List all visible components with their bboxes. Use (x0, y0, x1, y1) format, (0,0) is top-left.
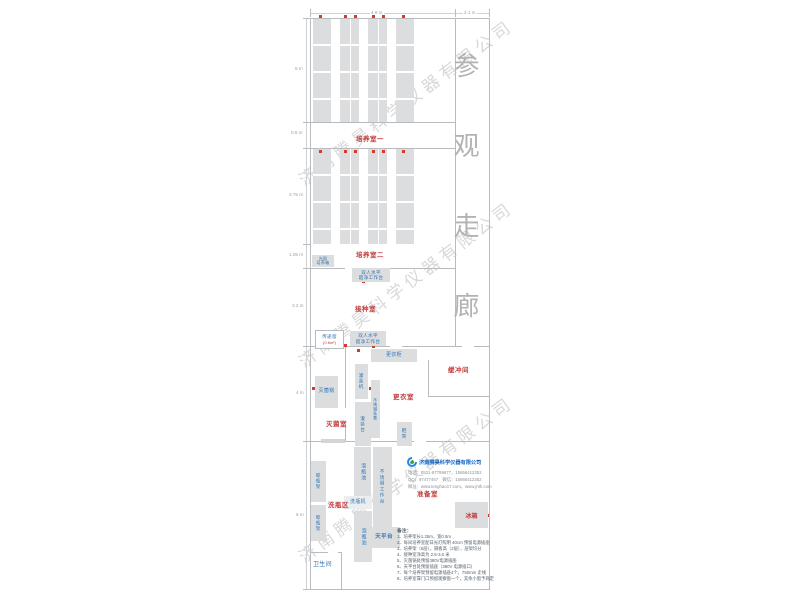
dimension-label-3-75m: 3.75 m (288, 192, 304, 197)
room-label-washing: 洗瓶区 (328, 499, 349, 509)
dimension-label-top-corridor: 2.1 m (463, 10, 477, 15)
room-label-inoculation: 接种室 (355, 303, 376, 313)
equipment-wardrobe: 更衣柜 (371, 349, 417, 362)
wall-inoculation-bottom (342, 346, 390, 347)
room-label-culture1: 培养室一 (356, 133, 384, 143)
equipment-drying-rack-1: 晾瓶架 (311, 461, 326, 502)
outlet-dot (382, 15, 385, 18)
outlet-dot (319, 15, 322, 18)
clean-bench-label: 双人水平 超净工作台 (359, 270, 383, 280)
outlet-dot (402, 15, 405, 18)
outlet-dot (372, 150, 375, 153)
wall-toilet-top (310, 552, 328, 553)
soak-pool-label: 泡瓶池 (360, 463, 365, 481)
notes-title: 备注： (397, 527, 411, 534)
equipment-clean-bench-1: 双人水平 超净工作台 (352, 268, 390, 282)
equipment-light-incubator: 光照 培养箱 (312, 255, 334, 267)
culture-shelf-strip (368, 149, 387, 244)
outlet-dot (382, 150, 385, 153)
light-incubator-label: 光照 培养箱 (317, 257, 330, 266)
steel-bench-label: 不锈钢条凳 (373, 398, 378, 421)
culture-shelf-strip (313, 149, 331, 244)
dimension-label-5m: 5 m (294, 66, 304, 71)
fridge-label: 冰箱 (465, 511, 477, 520)
wall-culture2-bottom (310, 268, 345, 269)
outlet-dot (354, 15, 357, 18)
wall-inoculation-bottom (402, 346, 428, 347)
drying-rack-label: 晾瓶架 (316, 515, 321, 532)
wall-buffer-bottom (428, 396, 490, 397)
pass-window-size: (0.6m²) (323, 340, 336, 345)
dimension-tick (303, 589, 310, 590)
company-qq: QQ：97477467 微信：15866412352 (408, 477, 482, 483)
bottle-washer-label: 洗瓶机 (350, 500, 366, 505)
dimension-label-6m: 6 m (295, 512, 305, 517)
dimension-label-1-05m: 1.05 m (288, 252, 304, 257)
outlet-dot (344, 344, 347, 347)
outlet-dot (344, 15, 347, 18)
culture-shelf-strip (313, 19, 331, 122)
equipment-fridge: 冰箱 (455, 502, 488, 528)
dimension-tick (303, 18, 310, 19)
culture-shelf-strip (396, 19, 414, 122)
outlet-dot (402, 150, 405, 153)
room-label-sterilization: 灭菌室 (326, 418, 347, 428)
equipment-balance-table: 天平台 (368, 527, 400, 548)
clean-bench-label: 双人水平 超净工作台 (356, 333, 380, 343)
dimension-tick (455, 9, 456, 17)
equipment-steel-worktable: 不锈钢工作台 (373, 447, 392, 527)
dimension-tick (303, 122, 310, 123)
culture-shelf-strip (368, 19, 387, 122)
outlet-dot (357, 349, 360, 352)
soak-pool-label: 泡瓶池 (360, 528, 365, 546)
equipment-drying-rack-2: 晾瓶架 (311, 505, 326, 541)
dimension-tick (303, 148, 310, 149)
outlet-dot (344, 150, 347, 153)
dimension-label-0-6m: 0.6 m (290, 130, 304, 135)
outlet-dot (319, 150, 322, 153)
balance-table-label: 天平台 (375, 535, 393, 540)
dimension-label-4m: 4 m (295, 390, 305, 395)
dimension-tick (310, 9, 311, 17)
note-line-8: 8、培养室靠门口预留观察窗一个，其余小窗予商定 (397, 576, 494, 582)
shoe-rack-label: 鞋架 (402, 428, 407, 439)
company-name: 济南腾昊科学仪器有限公司 (419, 459, 481, 466)
company-logo-icon (407, 457, 417, 467)
dimension-label-3-2m: 3.2 m (291, 303, 305, 308)
equipment-shoe-rack: 鞋架 (397, 422, 412, 446)
culture-shelf-strip (396, 149, 414, 244)
culture-shelf-strip (340, 149, 359, 244)
filling-table-label: 灌装台 (360, 416, 365, 433)
culture-shelf-strip (340, 19, 359, 122)
wall-right (489, 18, 490, 590)
room-label-toilet: 卫生间 (313, 563, 332, 568)
equipment-filling-machine: 灌装机 (355, 364, 368, 399)
outlet-dot (354, 150, 357, 153)
dimension-tick (303, 268, 310, 269)
equipment-clean-bench-2: 双人水平 超净工作台 (350, 331, 386, 346)
equipment-pass-window: 传递窗 (0.6m²) (315, 330, 344, 349)
wall-toilet-right (341, 552, 342, 590)
dimension-line-left (306, 18, 307, 590)
equipment-autoclave: 灭菌锅 (315, 376, 338, 408)
dimension-tick (303, 244, 310, 245)
wardrobe-label: 更衣柜 (386, 353, 402, 358)
outlet-dot (372, 15, 375, 18)
wall-band-top (310, 122, 455, 123)
equipment-soak-pool-1: 泡瓶池 (354, 447, 371, 497)
equipment-filling-table: 灌装台 (355, 402, 371, 446)
floor-plan-canvas: 济南腾昊科学仪器有限公司 济南腾昊科学仪器有限公司 济南腾昊科学仪器有限公司 4… (0, 0, 800, 600)
room-label-changing: 更衣室 (393, 391, 414, 401)
company-phone: 电话：0531-87799677，15866412352 (408, 470, 482, 476)
drying-rack-label: 晾瓶架 (316, 473, 321, 490)
wall-bottom (310, 589, 490, 590)
room-label-culture2: 培养室二 (356, 249, 384, 259)
dimension-tick (489, 9, 490, 17)
wall-prep-top (426, 441, 490, 442)
wall-buffer-left (428, 360, 429, 397)
filling-machine-label: 灌装机 (359, 373, 364, 390)
dimension-tick (303, 441, 310, 442)
door-marker (321, 439, 345, 443)
corridor-label: 参观走廊 (446, 52, 483, 372)
steel-worktable-label: 不锈钢工作台 (380, 469, 385, 504)
equipment-steel-bench: 不锈钢条凳 (371, 380, 380, 438)
wall-toilet-top (338, 552, 342, 553)
dimension-tick (303, 346, 310, 347)
company-web: 网址：www.tenghao17.com，www.jnth.com (408, 484, 492, 490)
autoclave-label: 灭菌锅 (319, 389, 335, 394)
wall-sterilization-right (345, 346, 346, 408)
